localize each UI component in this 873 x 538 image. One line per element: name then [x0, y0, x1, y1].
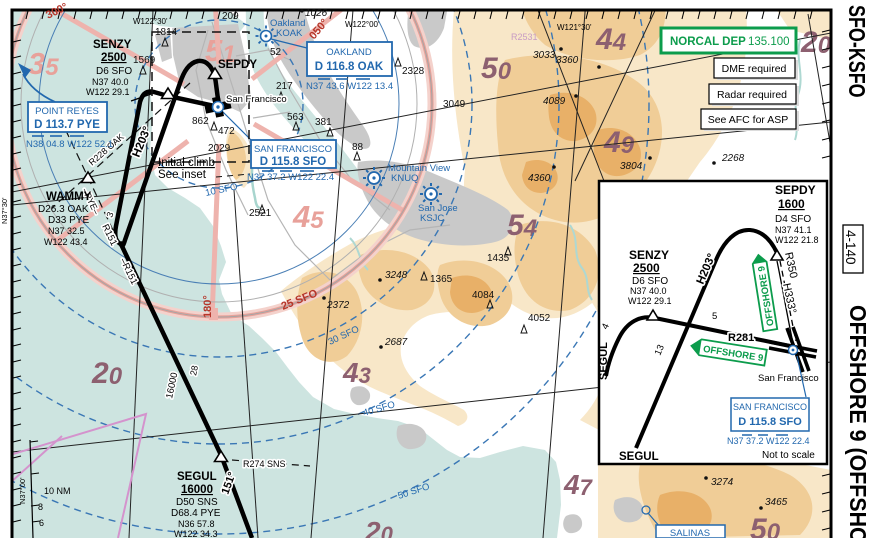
- svg-text:R274 SNS: R274 SNS: [243, 459, 286, 469]
- svg-text:W122 29.1: W122 29.1: [86, 87, 130, 97]
- svg-text:POINT REYES: POINT REYES: [35, 106, 99, 117]
- svg-text:52: 52: [270, 47, 282, 58]
- svg-text:N37 37.2 W122 22.4: N37 37.2 W122 22.4: [247, 172, 334, 183]
- svg-text:D 116.8 OAK: D 116.8 OAK: [315, 61, 384, 73]
- svg-text:2328: 2328: [402, 66, 425, 77]
- svg-text:D 115.8 SFO: D 115.8 SFO: [260, 156, 327, 168]
- svg-text:D6 SFO: D6 SFO: [96, 66, 132, 77]
- svg-text:D 113.7 PYE: D 113.7 PYE: [34, 119, 100, 131]
- svg-text:San Francisco: San Francisco: [758, 373, 819, 384]
- svg-text:W122 21.8: W122 21.8: [775, 235, 819, 245]
- svg-text:Not to scale: Not to scale: [762, 450, 815, 461]
- svg-text:W122 29.1: W122 29.1: [628, 296, 672, 306]
- svg-text:N37°00': N37°00': [18, 477, 27, 504]
- svg-text:2687: 2687: [384, 337, 408, 348]
- svg-text:SAN FRANCISCO: SAN FRANCISCO: [733, 402, 807, 412]
- svg-text:10 NM: 10 NM: [44, 486, 71, 496]
- svg-text:DME required: DME required: [722, 63, 787, 75]
- svg-text:SAN FRANCISCO: SAN FRANCISCO: [254, 144, 332, 155]
- svg-text:2268: 2268: [721, 153, 745, 164]
- svg-text:3465: 3465: [765, 497, 788, 508]
- svg-text:1026: 1026: [305, 8, 328, 19]
- svg-text:SEGUL: SEGUL: [619, 451, 659, 463]
- svg-text:563: 563: [287, 112, 304, 123]
- svg-text:D4 SFO: D4 SFO: [775, 214, 811, 225]
- svg-text:2500: 2500: [101, 52, 127, 64]
- svg-text:8: 8: [38, 502, 43, 512]
- svg-text:OAKLAND: OAKLAND: [326, 47, 372, 58]
- svg-text:88: 88: [352, 142, 364, 153]
- svg-text:180°: 180°: [202, 295, 214, 318]
- svg-text:N37 41.1: N37 41.1: [775, 225, 812, 235]
- svg-text:1365: 1365: [430, 274, 453, 285]
- svg-text:217: 217: [276, 81, 293, 92]
- svg-text:4052: 4052: [528, 313, 551, 324]
- svg-text:SEGUL: SEGUL: [598, 342, 610, 380]
- svg-text:KNUQ: KNUQ: [391, 173, 418, 184]
- svg-text:N37°30': N37°30': [0, 197, 9, 224]
- svg-text:NORCAL DEP: NORCAL DEP: [670, 36, 746, 48]
- svg-text:See inset: See inset: [158, 169, 207, 181]
- svg-text:W121°30': W121°30': [557, 23, 592, 32]
- svg-text:3248: 3248: [385, 270, 408, 281]
- svg-text:SEPDY: SEPDY: [218, 59, 257, 71]
- svg-text:6: 6: [39, 518, 44, 528]
- svg-text:N37 37.2 W122 22.4: N37 37.2 W122 22.4: [727, 436, 810, 446]
- svg-text:2029: 2029: [208, 143, 231, 154]
- svg-text:D33 PYE: D33 PYE: [48, 215, 89, 226]
- svg-text:1600: 1600: [778, 197, 805, 211]
- svg-text:See AFC for ASP: See AFC for ASP: [708, 114, 789, 126]
- svg-text:R2531: R2531: [511, 32, 538, 42]
- svg-text:SEPDY: SEPDY: [775, 183, 816, 197]
- svg-text:2500: 2500: [633, 261, 660, 275]
- svg-text:N38 04.8 W122 52.1: N38 04.8 W122 52.1: [26, 139, 113, 150]
- svg-text:4089: 4089: [543, 96, 566, 107]
- svg-text:N36 57.8: N36 57.8: [178, 519, 215, 529]
- svg-text:WAMMY: WAMMY: [46, 191, 92, 203]
- svg-text:3274: 3274: [711, 477, 734, 488]
- svg-text:28: 28: [188, 365, 200, 377]
- svg-text:N37 40.0: N37 40.0: [92, 77, 129, 87]
- svg-text:OFFSHORE 9 (OFFSHOR: OFFSHORE 9 (OFFSHOR: [845, 305, 871, 538]
- svg-text:D68.4 PYE: D68.4 PYE: [171, 508, 221, 519]
- svg-text:135.100: 135.100: [748, 36, 790, 48]
- svg-text:4-140: 4-140: [843, 230, 858, 265]
- svg-text:5: 5: [712, 311, 717, 322]
- svg-text:3049: 3049: [443, 99, 466, 110]
- svg-text:SEGUL: SEGUL: [177, 471, 217, 483]
- svg-text:SENZY: SENZY: [93, 39, 132, 51]
- svg-text:W122°00': W122°00': [345, 20, 380, 29]
- svg-text:Initial climb: Initial climb: [158, 157, 215, 169]
- svg-text:Radar required: Radar required: [717, 89, 787, 101]
- svg-text:San Francisco: San Francisco: [226, 94, 287, 105]
- svg-text:3360: 3360: [556, 55, 579, 66]
- svg-text:3804: 3804: [620, 161, 643, 172]
- svg-text:W122 43.4: W122 43.4: [44, 237, 88, 247]
- svg-text:209: 209: [222, 11, 239, 22]
- svg-text:4360: 4360: [528, 173, 551, 184]
- svg-text:862: 862: [192, 116, 209, 127]
- svg-text:D50 SNS: D50 SNS: [176, 497, 218, 508]
- svg-text:4084: 4084: [472, 290, 495, 301]
- svg-text:D 115.8 SFO: D 115.8 SFO: [738, 416, 802, 428]
- svg-text:KOAK: KOAK: [276, 28, 303, 39]
- svg-text:W122°30': W122°30': [133, 17, 168, 26]
- svg-text:SFO-KSFO: SFO-KSFO: [843, 5, 869, 98]
- svg-text:472: 472: [218, 126, 235, 137]
- svg-text:N37 40.0: N37 40.0: [630, 286, 667, 296]
- svg-text:D26.3 OAK: D26.3 OAK: [38, 204, 89, 215]
- svg-text:R281: R281: [728, 332, 754, 344]
- svg-text:N37 32.5: N37 32.5: [48, 226, 85, 236]
- svg-text:381: 381: [315, 117, 332, 128]
- svg-text:16000: 16000: [181, 484, 213, 496]
- svg-text:N37 43.6 W122 13.4: N37 43.6 W122 13.4: [306, 81, 393, 92]
- svg-text:SALINAS: SALINAS: [670, 528, 710, 538]
- svg-text:W122 34.3: W122 34.3: [174, 529, 218, 538]
- svg-text:KSJC: KSJC: [420, 213, 444, 224]
- svg-text:SENZY: SENZY: [629, 248, 669, 262]
- svg-text:3033: 3033: [533, 50, 556, 61]
- svg-text:2372: 2372: [326, 300, 350, 311]
